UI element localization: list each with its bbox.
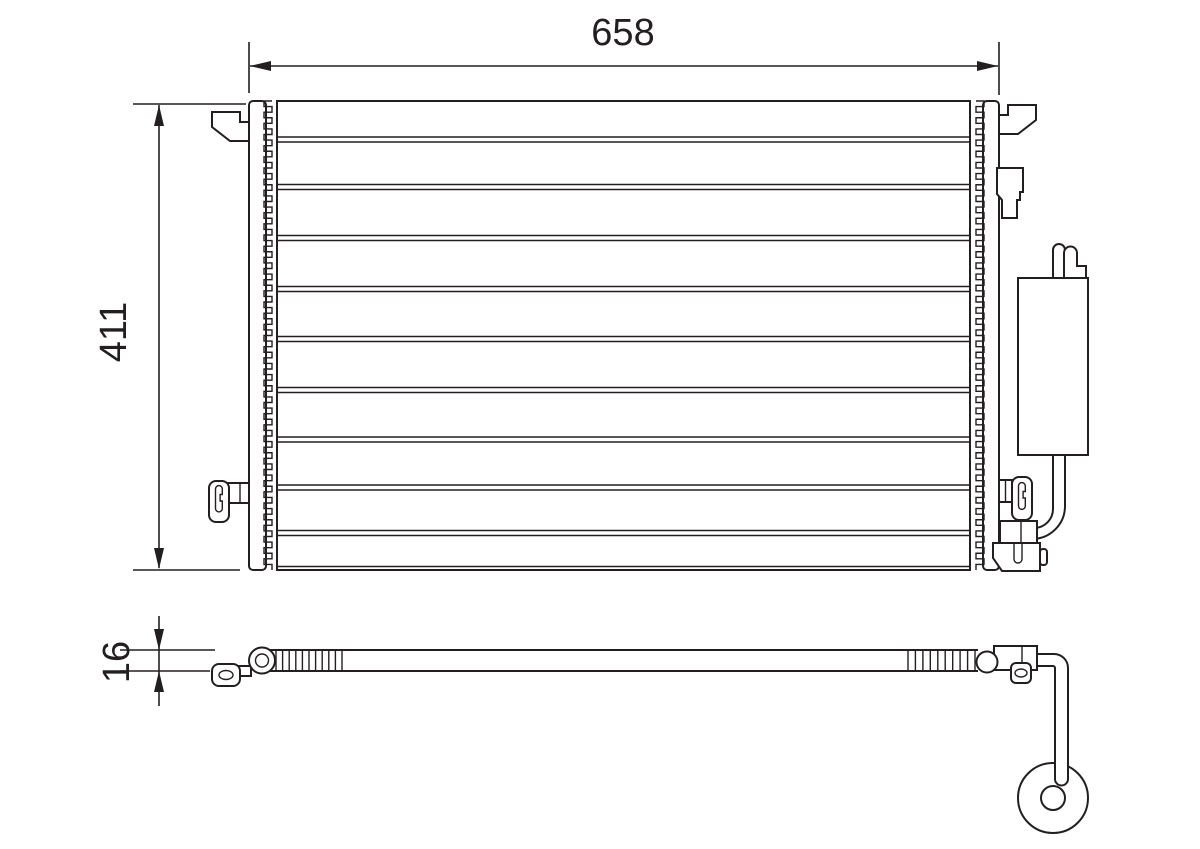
dimension-width: 658 bbox=[249, 12, 999, 95]
side-pipe-joint bbox=[977, 652, 998, 673]
side-right-fitting bbox=[977, 646, 1038, 683]
side-view bbox=[212, 646, 1088, 833]
height-arrow-bottom bbox=[154, 548, 164, 569]
height-arrow-top bbox=[154, 105, 164, 126]
core-outline bbox=[277, 101, 970, 570]
outlet-fitting bbox=[993, 521, 1047, 571]
side-mounting-tab bbox=[212, 664, 251, 686]
receiver-drier bbox=[1018, 244, 1088, 455]
side-ribs-left bbox=[276, 650, 342, 671]
drier-body bbox=[1018, 278, 1088, 455]
width-arrow-left bbox=[250, 61, 271, 71]
bracket-top-right bbox=[999, 105, 1036, 134]
bracket-top-left bbox=[212, 112, 249, 141]
drier-top-pipe-2 bbox=[1064, 247, 1086, 279]
front-view bbox=[209, 101, 1088, 571]
inlet-connector bbox=[997, 168, 1023, 218]
depth-dimension-label: 16 bbox=[96, 641, 138, 683]
condenser-diagram-page: 658 411 16 bbox=[0, 0, 1200, 849]
dimension-depth: 16 bbox=[96, 616, 215, 706]
side-ribs-right bbox=[908, 650, 975, 671]
side-slab bbox=[260, 650, 978, 671]
bracket-bottom-left bbox=[209, 481, 249, 522]
depth-arrow-top bbox=[154, 629, 164, 650]
condenser-diagram: 658 411 16 bbox=[0, 0, 1200, 849]
side-grommet bbox=[249, 648, 275, 674]
depth-arrow-bottom bbox=[154, 671, 164, 692]
width-arrow-right bbox=[977, 61, 998, 71]
bracket-bottom-right bbox=[999, 477, 1032, 520]
width-dimension-label: 658 bbox=[591, 12, 654, 54]
ring-mount-hole bbox=[1041, 786, 1065, 810]
height-dimension-label: 411 bbox=[93, 302, 135, 363]
